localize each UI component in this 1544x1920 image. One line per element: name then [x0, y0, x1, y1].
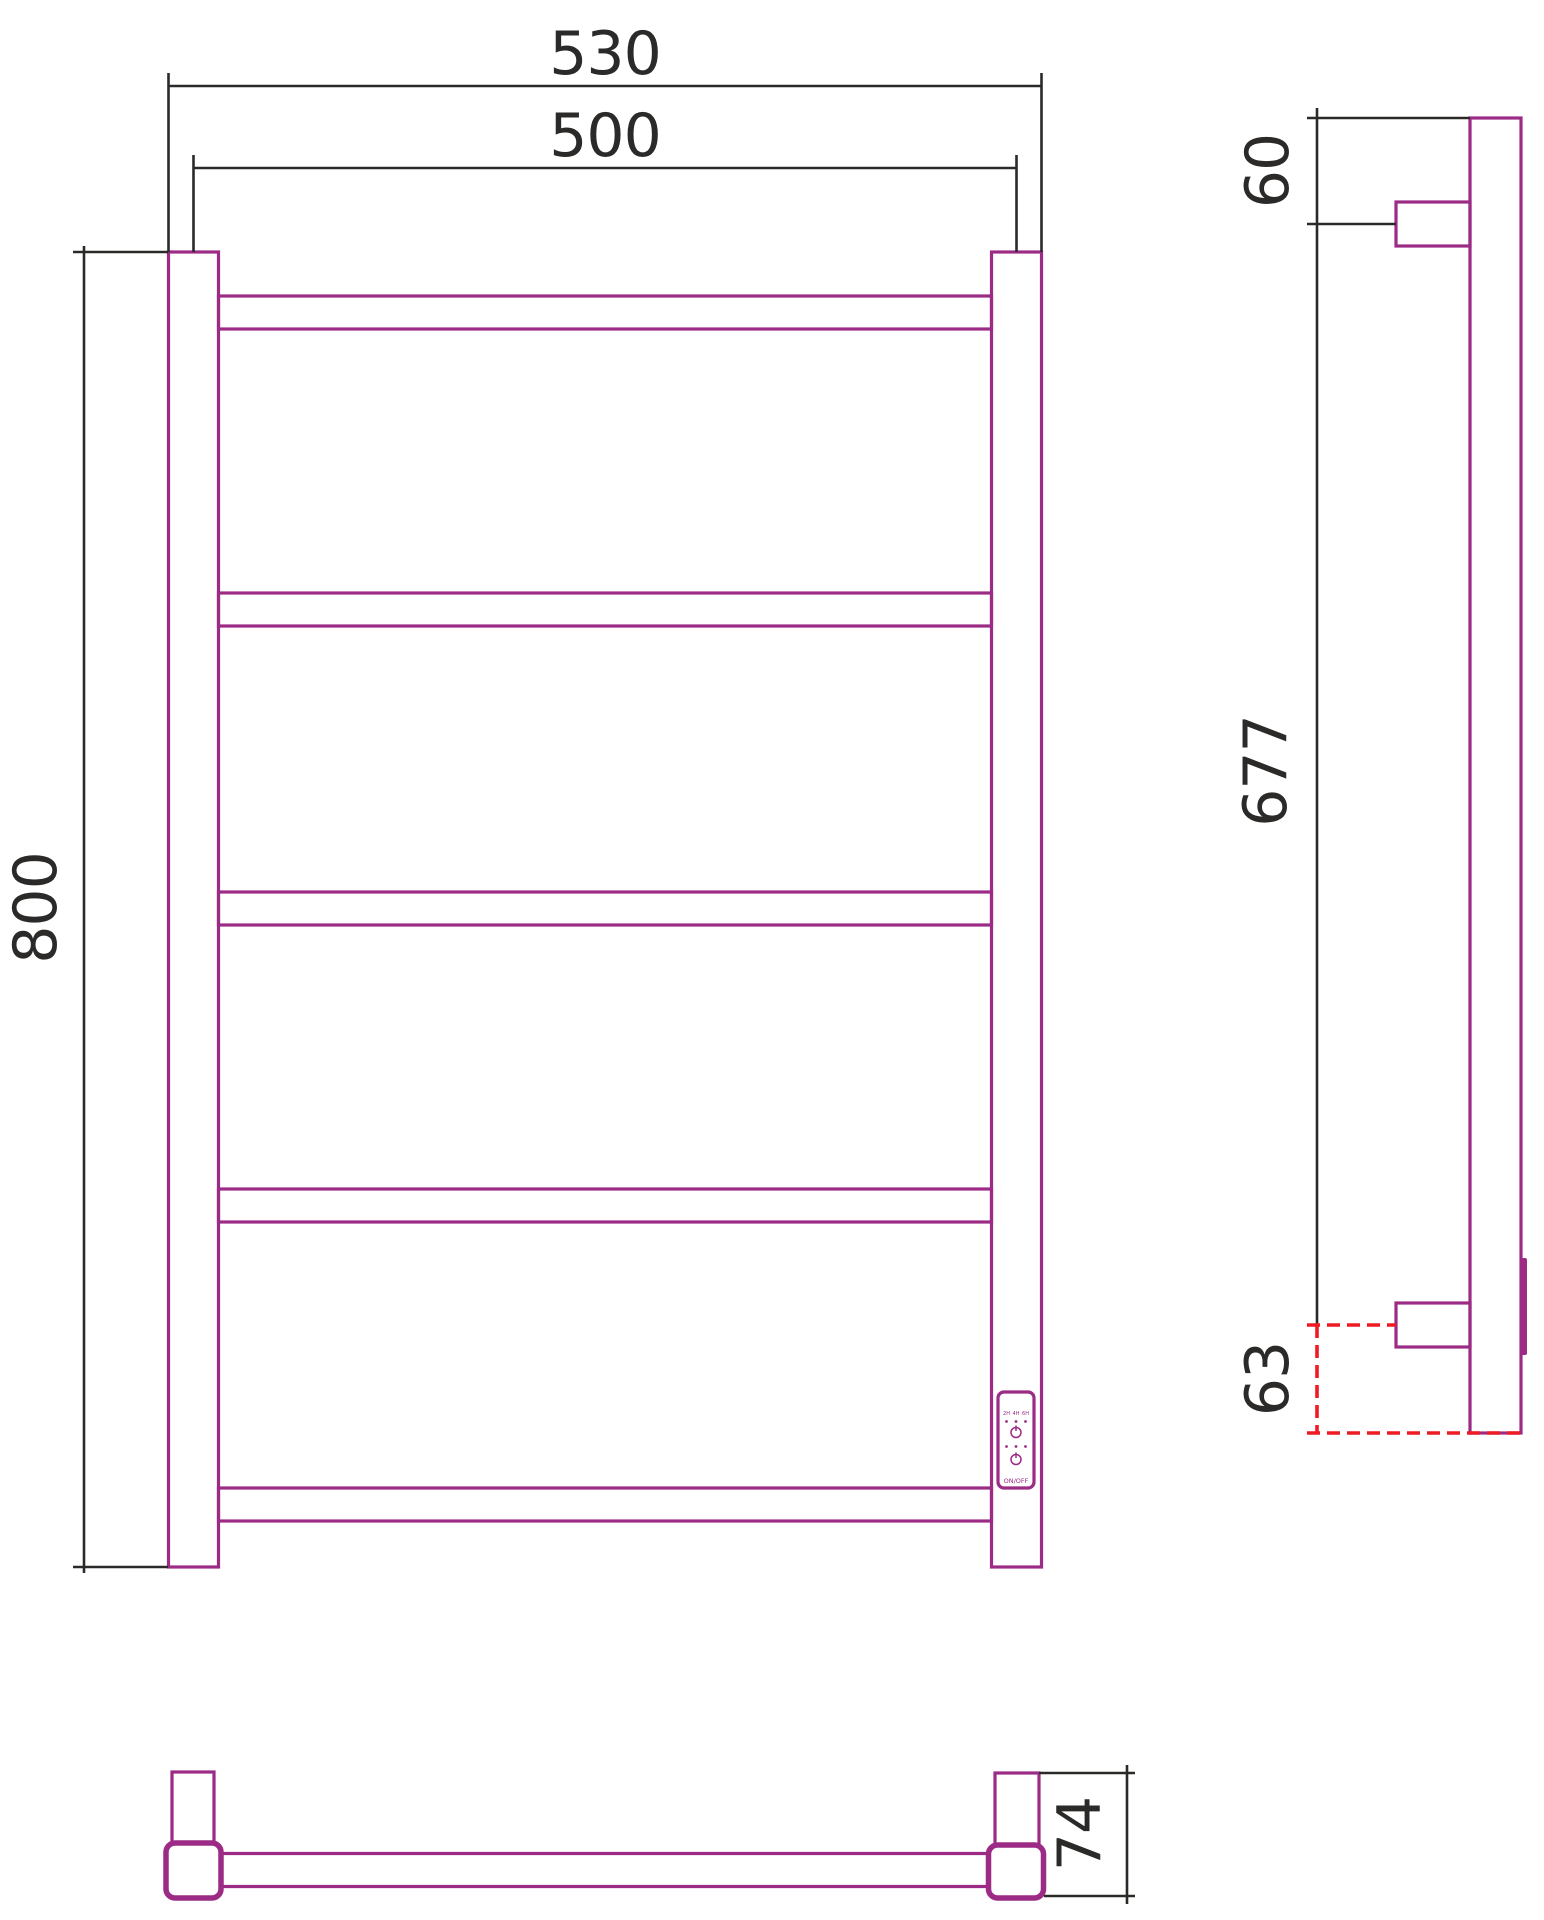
timer-label-4h: 4H [1013, 1411, 1020, 1417]
front-view: 2H 4H 6H ON/OFF [169, 252, 1042, 1567]
rung [219, 892, 992, 925]
bottom-view [166, 1772, 1044, 1898]
control-panel: 2H 4H 6H ON/OFF [998, 1392, 1034, 1488]
left-bracket-bottom-view [172, 1772, 214, 1845]
detail-highlight [1307, 1325, 1523, 1433]
bottom-dimensions: 74 [1039, 1765, 1135, 1904]
dim-label-center-width: 500 [549, 101, 661, 171]
control-panel-outline [998, 1392, 1034, 1488]
dim-label-bracket-span: 677 [1231, 715, 1301, 827]
right-post [992, 252, 1042, 1567]
left-hub [166, 1843, 221, 1898]
drawing-canvas: 2H 4H 6H ON/OFF [0, 0, 1544, 1920]
power-icon [1011, 1426, 1021, 1438]
power-icon [1011, 1453, 1021, 1465]
top-wall-bracket [1396, 202, 1470, 246]
dim-label-outer-width: 530 [549, 19, 661, 89]
side-view [1396, 118, 1527, 1433]
indicator-dots [1005, 1445, 1027, 1448]
rung [219, 296, 992, 329]
front-dimensions: 530 500 800 [1, 19, 1042, 1573]
right-bracket-bottom-view [995, 1773, 1039, 1845]
dim-label-bottom-offset: 63 [1233, 1342, 1303, 1416]
towel-rail-drawing: 2H 4H 6H ON/OFF [0, 0, 1544, 1920]
rung [219, 1189, 992, 1222]
right-hub [989, 1845, 1044, 1898]
side-dimensions: 60 677 63 [1231, 108, 1523, 1433]
timer-label-2h: 2H [1003, 1411, 1010, 1417]
onoff-label: ON/OFF [1004, 1477, 1029, 1485]
bottom-wall-bracket [1396, 1303, 1470, 1347]
timer-label-6h: 6H [1022, 1411, 1029, 1417]
side-profile [1470, 118, 1521, 1433]
dim-label-top-offset: 60 [1233, 134, 1303, 208]
rung [219, 593, 992, 626]
dim-label-depth: 74 [1045, 1797, 1115, 1871]
control-panel-side-profile [1520, 1258, 1527, 1355]
timer-dots [1005, 1420, 1027, 1423]
left-post [169, 252, 219, 1567]
dim-label-height: 800 [1, 852, 71, 964]
rung [219, 1488, 992, 1521]
